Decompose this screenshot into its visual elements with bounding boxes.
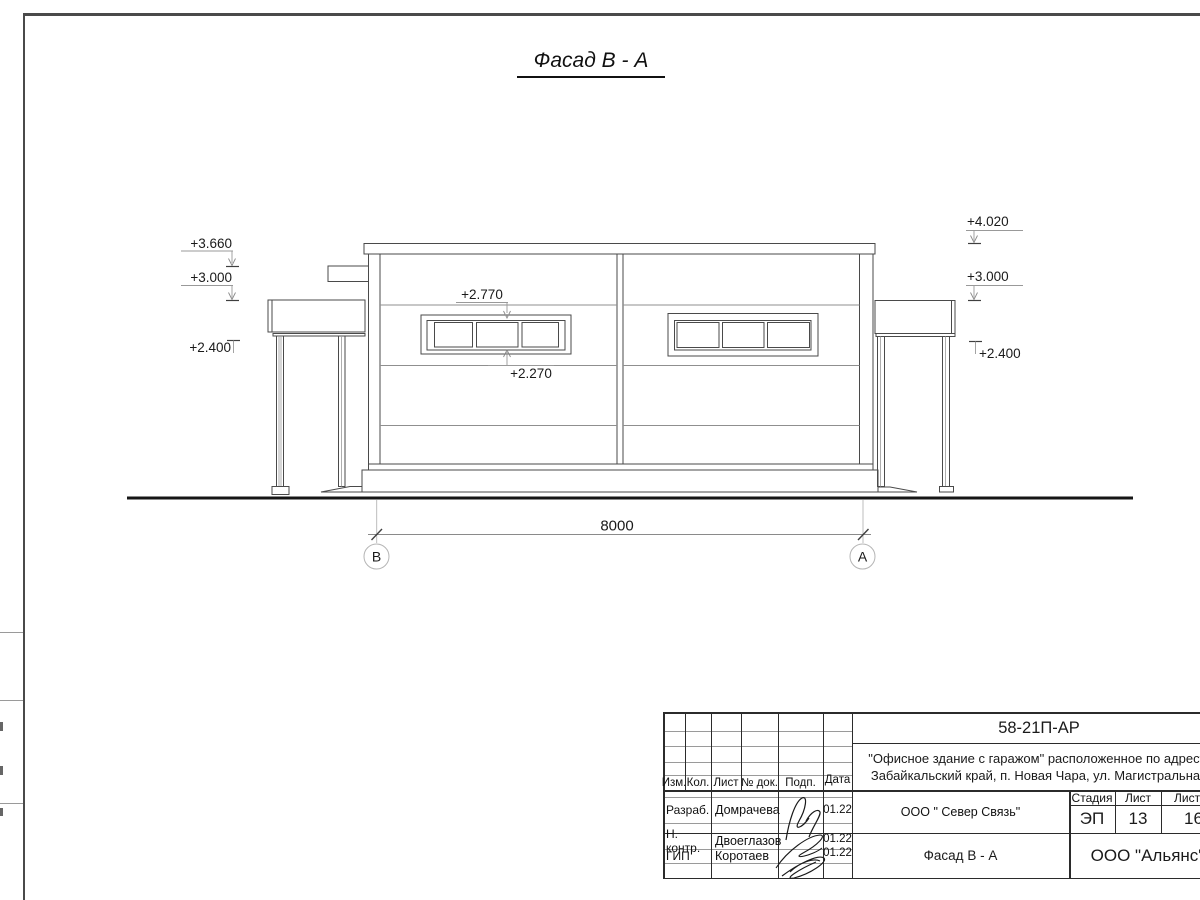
col-header-izm: Изм.: [663, 775, 685, 791]
name-gip: Коротаев: [715, 848, 777, 864]
role-ncontrol: Н. контр.: [666, 833, 712, 849]
list-label: Лист: [1115, 790, 1161, 805]
col-header-list: Лист: [711, 775, 741, 791]
col-header-podp: Подп.: [778, 775, 823, 791]
col-header-doc: № док.: [741, 775, 778, 791]
customer-org: ООО " Север Связь": [852, 791, 1069, 832]
col-header-data: Дата: [823, 772, 852, 788]
signature-ncontrol-gip: [770, 828, 828, 880]
sheet-name-cell: Фасад В - А: [852, 833, 1069, 878]
designer-org: ООО "Альянс": [1069, 833, 1200, 878]
project-line-2: Забайкальский край, п. Новая Чара, ул. М…: [871, 767, 1200, 784]
name-ncontrol: Двоеглазов: [715, 833, 777, 849]
listov-value: 16: [1161, 805, 1200, 833]
stage-value: ЭП: [1069, 805, 1115, 833]
project-description: "Офисное здание с гаражом" расположенное…: [852, 744, 1200, 790]
name-developer: Домрачева: [715, 797, 777, 823]
role-developer: Разраб.: [666, 797, 710, 823]
date-developer: 01.22: [823, 800, 852, 820]
list-value: 13: [1115, 805, 1161, 833]
listov-label: Листов: [1161, 790, 1200, 805]
project-line-1: "Офисное здание с гаражом" расположенное…: [868, 750, 1200, 767]
stage-label: Стадия: [1069, 790, 1115, 805]
role-gip: ГИП: [666, 848, 712, 864]
drawing-sheet: Фасад В - А: [0, 0, 1200, 900]
title-block: Изм. Кол. Лист № док. Подп. Дата Разраб.…: [0, 0, 1200, 900]
col-header-kol: Кол.: [685, 775, 711, 791]
doc-code: 58-21П-АР: [852, 713, 1200, 743]
